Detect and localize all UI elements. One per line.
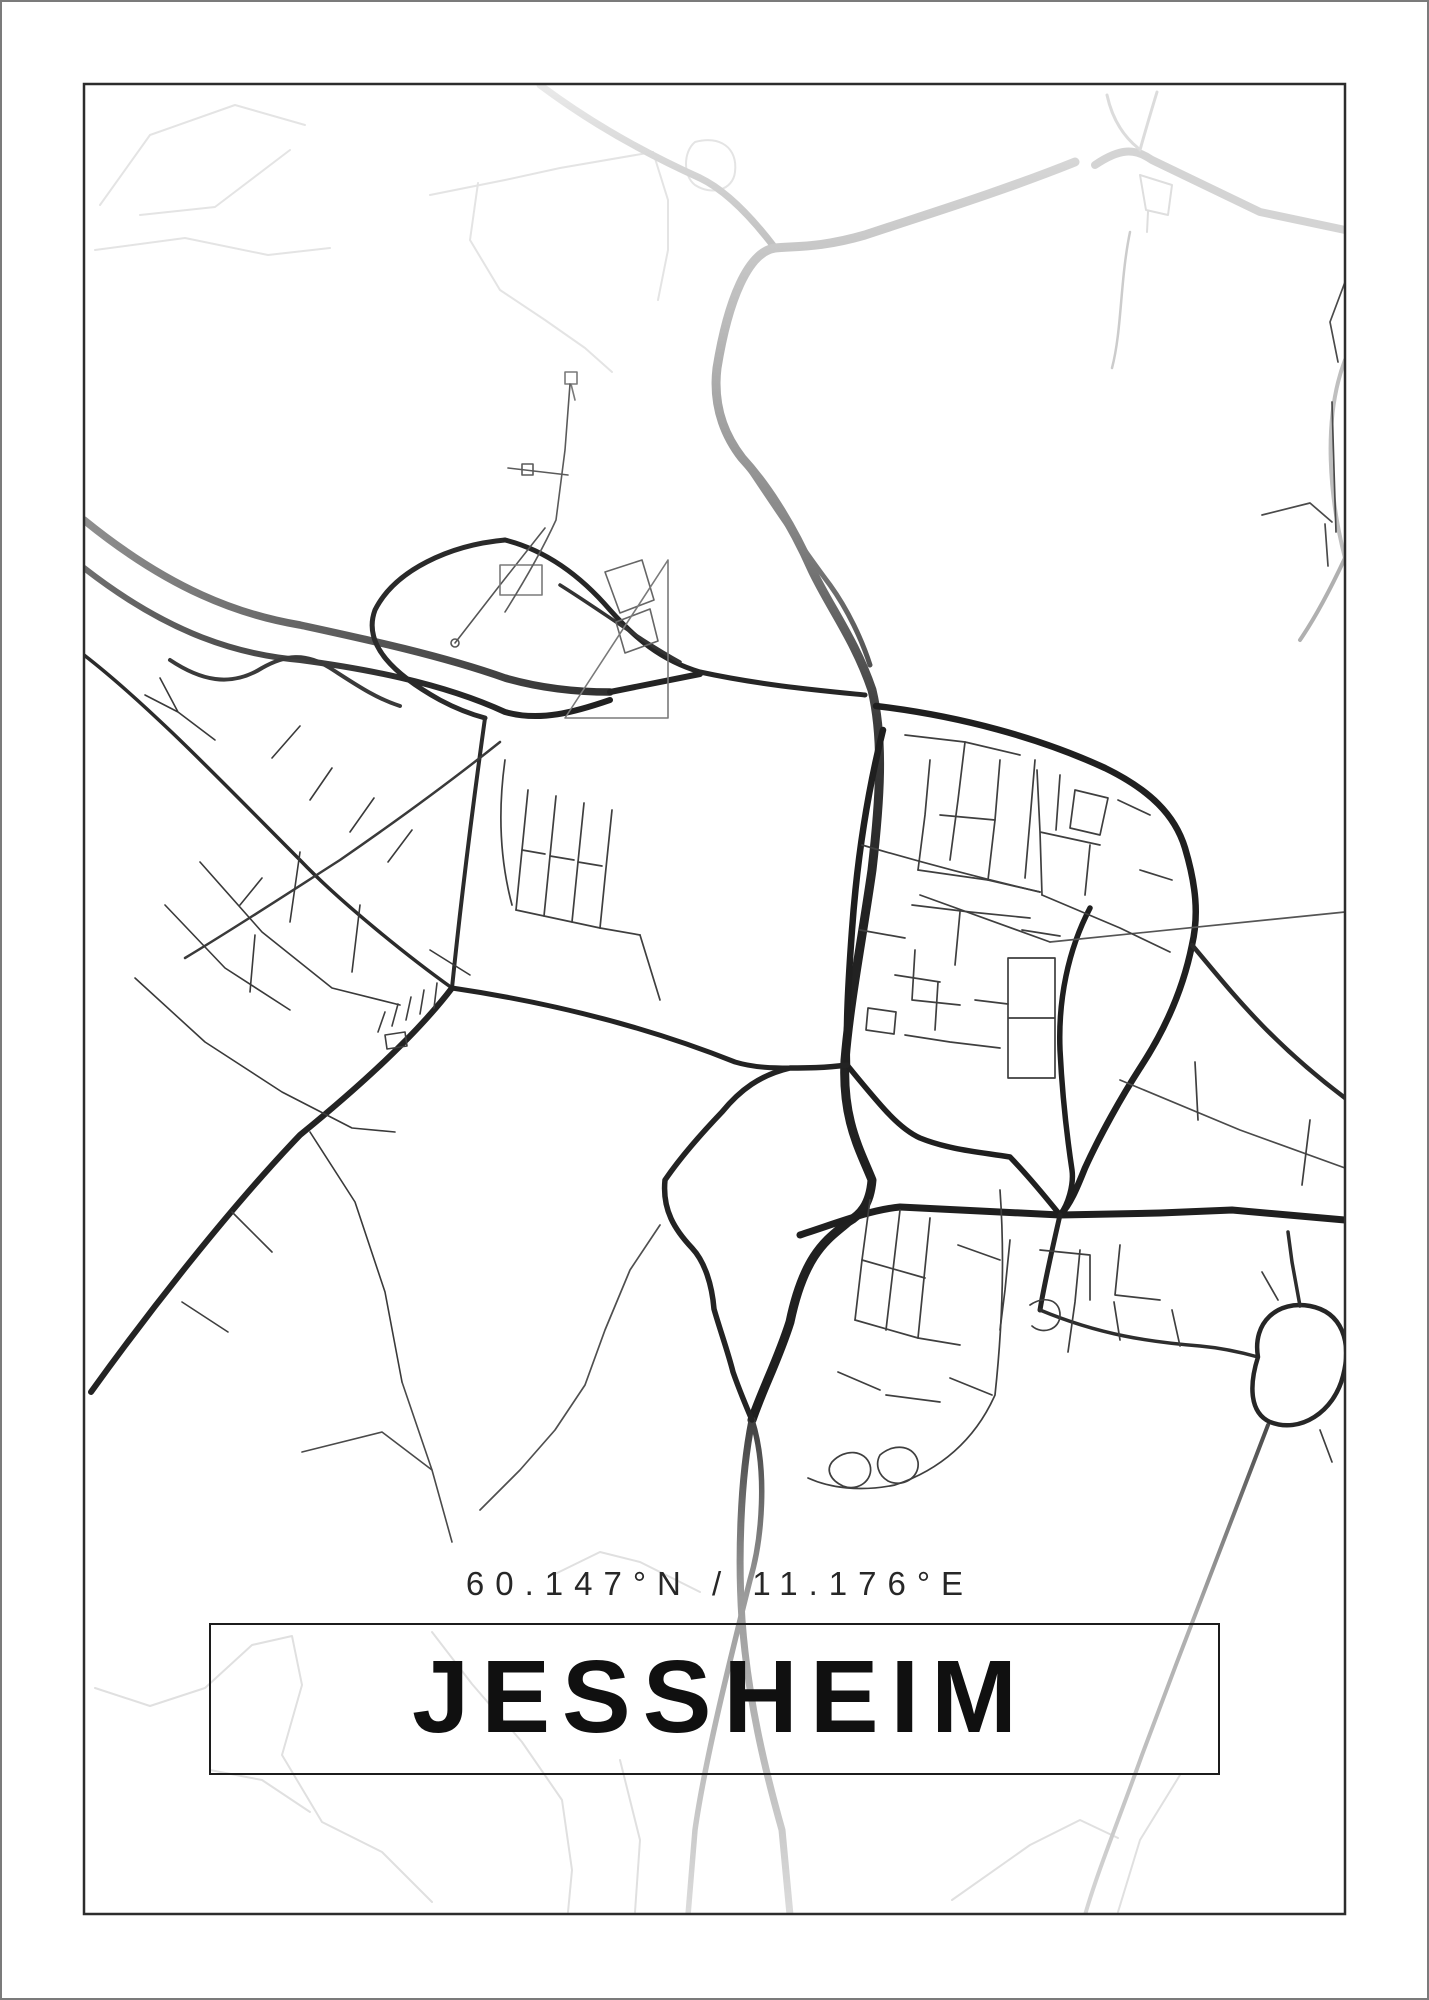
map-poster: 60.147°N / 11.176°E JESSHEIM bbox=[0, 0, 1429, 2000]
city-title: JESSHEIM bbox=[400, 1638, 1029, 1756]
highway-roads bbox=[540, 85, 1075, 1420]
town-streets bbox=[501, 735, 1345, 1185]
light-roads bbox=[1095, 92, 1345, 640]
south-cluster-streets bbox=[480, 1190, 1160, 1510]
city-title-box: JESSHEIM bbox=[209, 1623, 1220, 1775]
northeast-streets bbox=[1262, 282, 1345, 566]
west-village-streets bbox=[135, 678, 500, 1542]
southwest-roads bbox=[84, 655, 790, 1392]
coordinates-label: 60.147°N / 11.176°E bbox=[84, 1558, 1345, 1610]
town-ring-roads bbox=[665, 706, 1345, 1420]
